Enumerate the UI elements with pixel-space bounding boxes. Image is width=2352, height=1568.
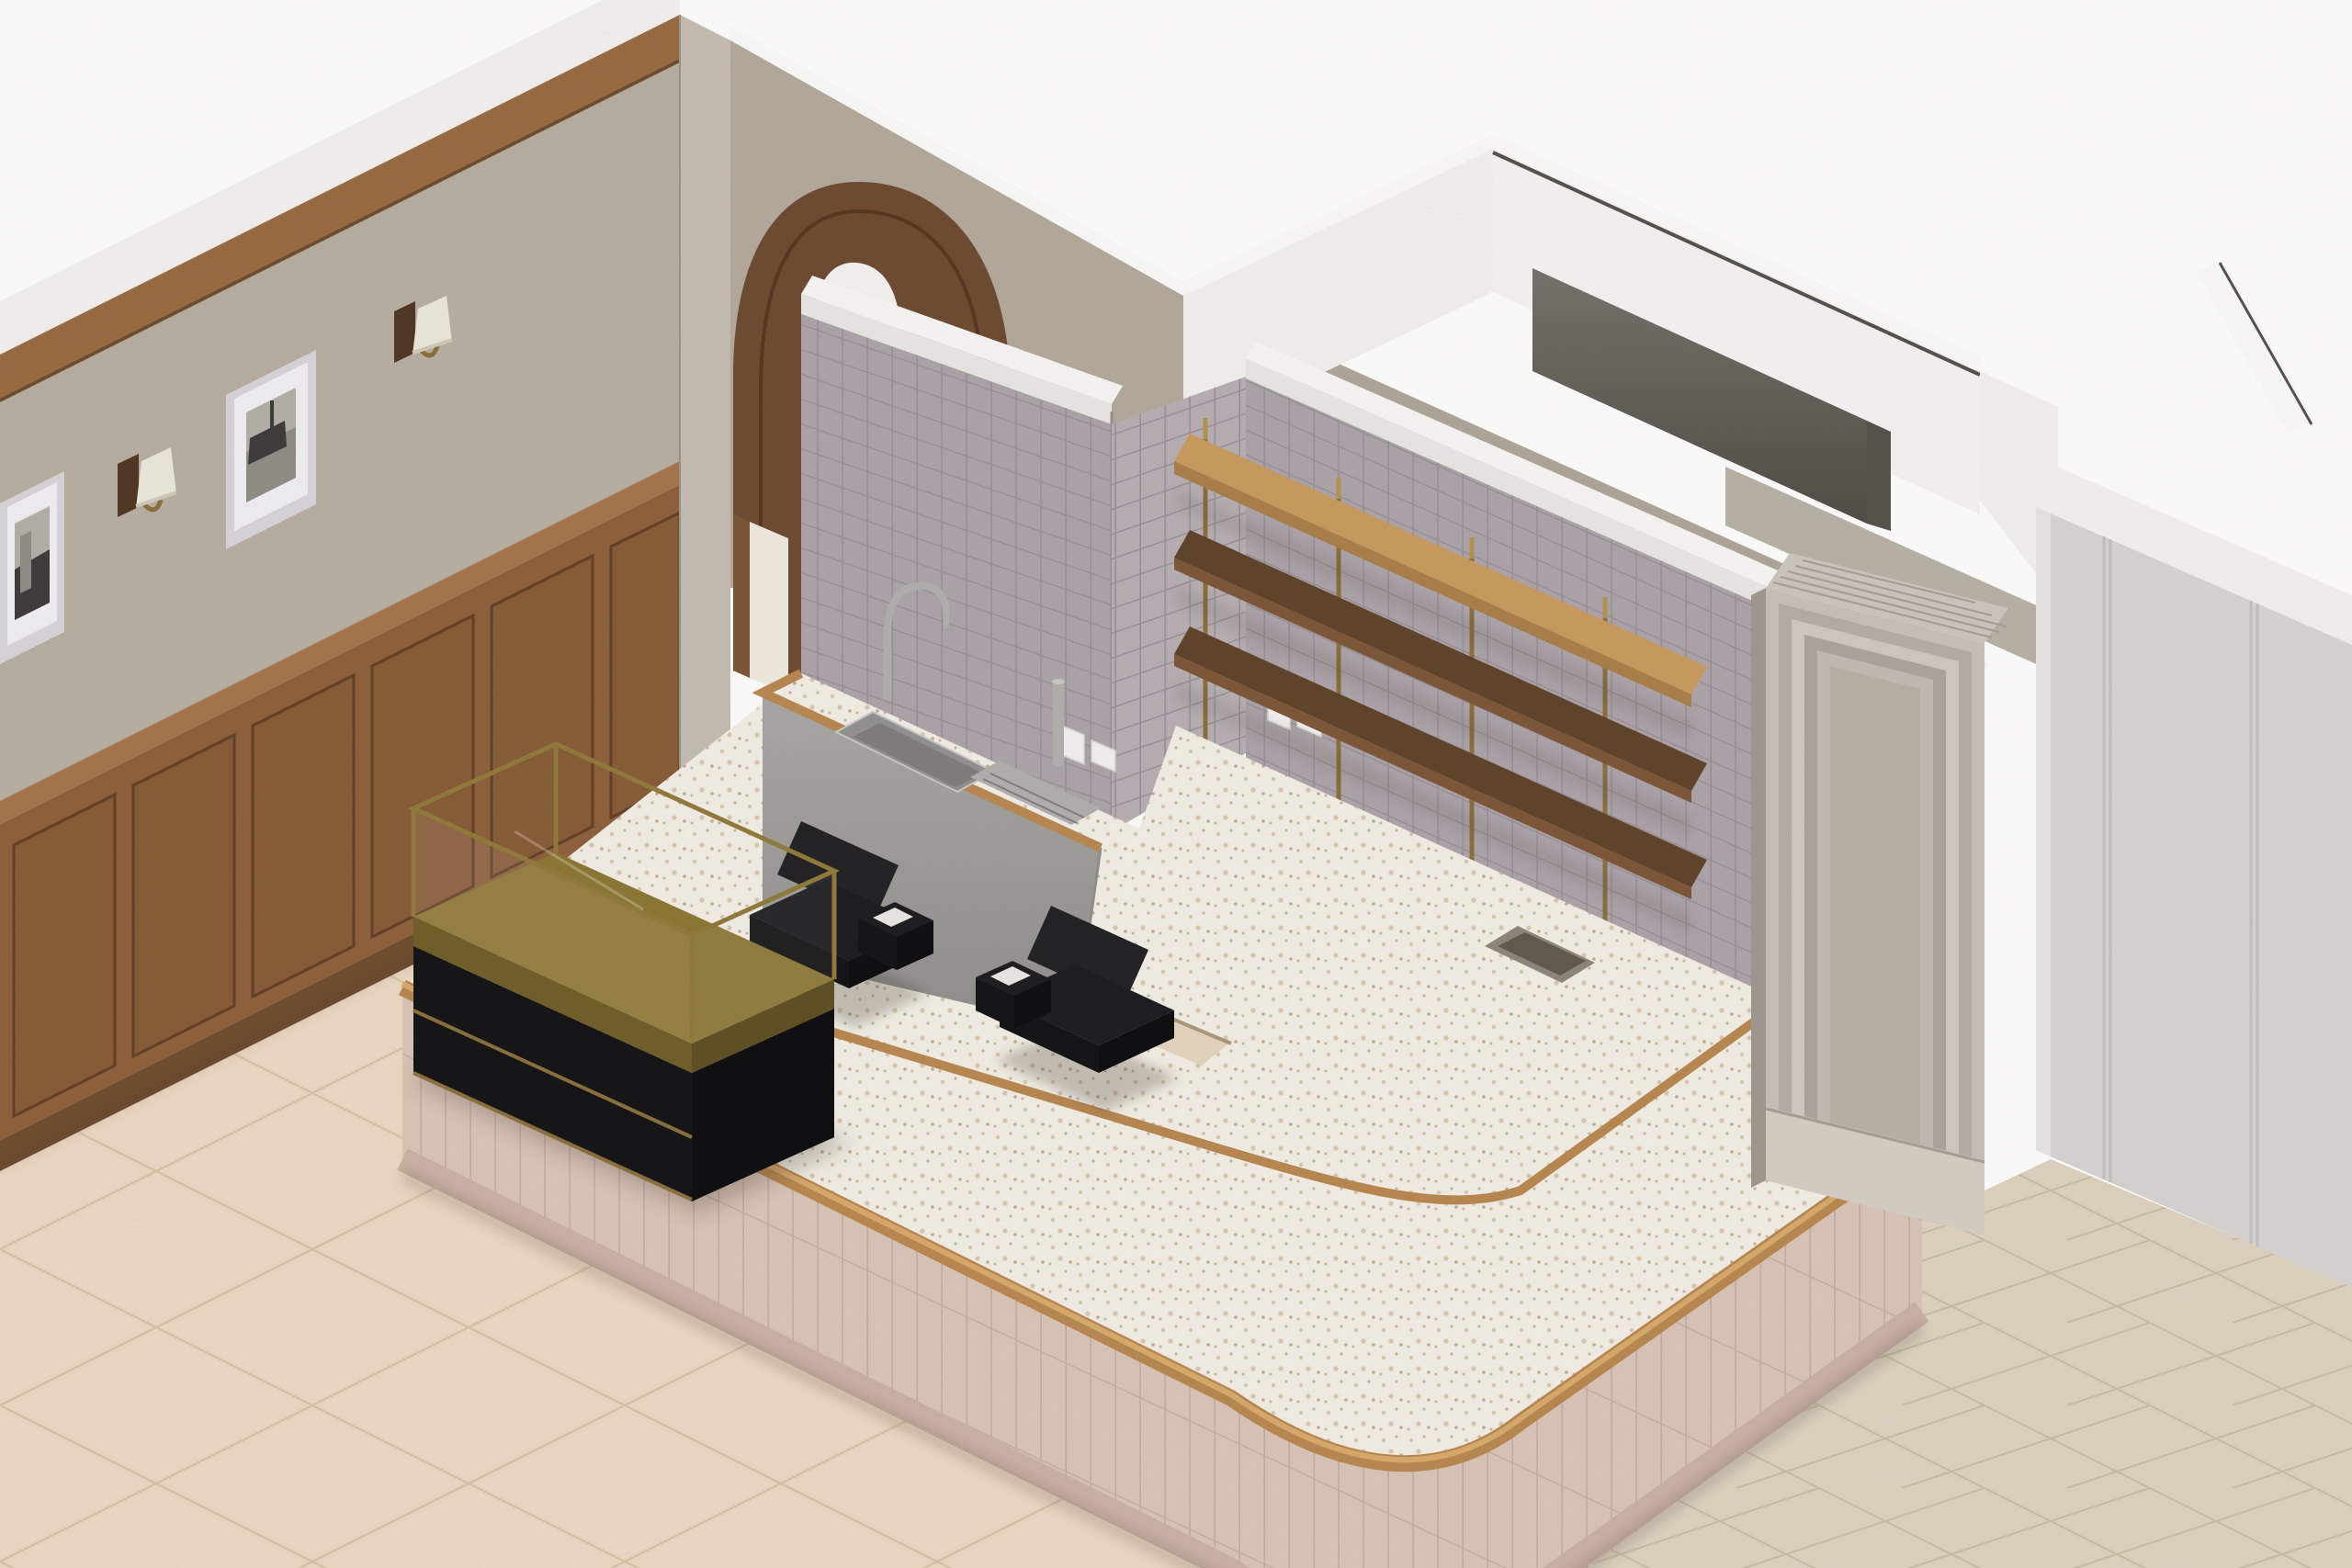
isometric-interior-render: Clay-style cutaway render: grey plaster … (0, 0, 2352, 1568)
render-canvas: Clay-style cutaway render: grey plaster … (0, 0, 2352, 1568)
grain-overlay (0, 0, 2352, 1568)
